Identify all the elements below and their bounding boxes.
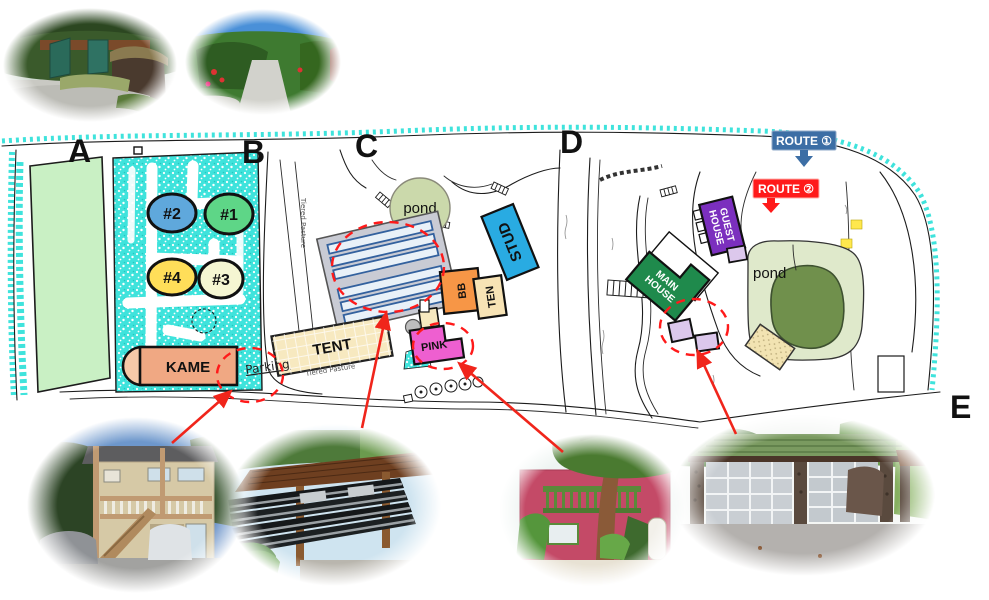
route-1-label: ROUTE ① (776, 134, 832, 148)
cottage-1 (668, 319, 693, 342)
driveway-road-photo (180, 5, 350, 125)
section-c-label: C (355, 128, 378, 164)
pond-d-label: pond (753, 265, 786, 282)
cottage-2 (695, 333, 719, 352)
tree-row (403, 377, 483, 403)
unit-1-label: #1 (220, 207, 238, 224)
section-d-label: D (560, 124, 583, 160)
entrance-gate-photo (0, 5, 180, 130)
route-2-badge: ROUTE ② (753, 179, 819, 213)
unit-2-label: #2 (163, 206, 181, 223)
route-1-badge: ROUTE ① (772, 131, 836, 167)
unit-3-label: #3 (212, 272, 230, 289)
field-a (30, 157, 110, 392)
guest-house-building: GUEST HOUSE (693, 197, 747, 263)
site-map-page: #2 #1 #4 #3 KAME pond (0, 0, 989, 600)
main-house-garage-photo (665, 410, 950, 585)
bb-label: BB (456, 282, 470, 299)
main-house-building: MAIN HOUSE (626, 232, 718, 321)
section-c: pond TENT BB TEN (271, 178, 538, 376)
section-b-label: B (242, 134, 265, 170)
tiered-pasture-label-1: Tiered Pasture (299, 197, 307, 248)
raceway-tanks-photo (225, 420, 445, 595)
unit-4-label: #4 (163, 270, 181, 287)
section-a-label: A (68, 133, 91, 169)
route-1-arrow-icon (795, 150, 813, 167)
kame-label: KAME (166, 359, 210, 376)
stud-building: STUD (482, 204, 539, 280)
route-2-label: ROUTE ② (758, 182, 814, 196)
section-d: pond GUEST HOUSE MAIN HOUSE (626, 197, 863, 370)
route-2-arrow-icon (762, 198, 780, 213)
section-b-garden: #2 #1 #4 #3 KAME (113, 152, 262, 392)
ten-building: TEN (473, 275, 506, 319)
kame-house-photo (25, 415, 252, 598)
section-e-label: E (950, 389, 971, 425)
